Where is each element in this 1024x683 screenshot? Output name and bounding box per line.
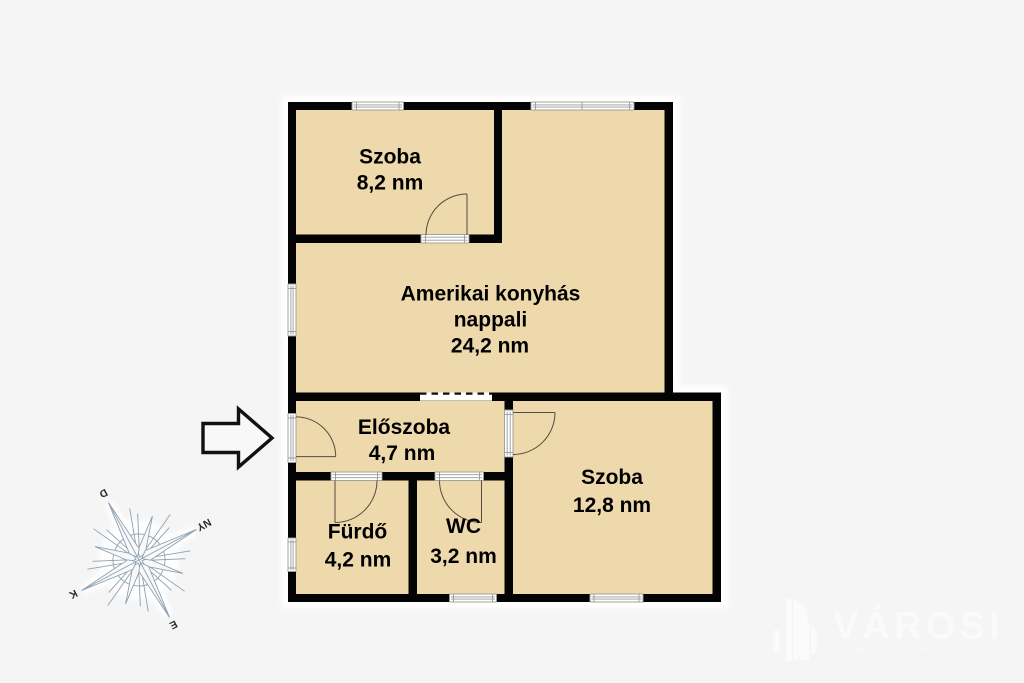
svg-text:8,2 nm: 8,2 nm bbox=[357, 172, 424, 195]
svg-text:VÁROSI: VÁROSI bbox=[833, 604, 1004, 648]
svg-text:Szoba: Szoba bbox=[359, 146, 421, 169]
svg-text:nappali: nappali bbox=[454, 309, 528, 332]
svg-text:4,2 nm: 4,2 nm bbox=[325, 549, 392, 572]
svg-text:INGATLANIRODA: INGATLANIRODA bbox=[834, 644, 994, 656]
svg-text:24,2 nm: 24,2 nm bbox=[451, 335, 529, 358]
svg-text:12,8 nm: 12,8 nm bbox=[573, 494, 651, 517]
svg-text:Amerikai konyhás: Amerikai konyhás bbox=[401, 283, 581, 306]
svg-text:3,2 nm: 3,2 nm bbox=[430, 545, 497, 568]
svg-text:Szoba: Szoba bbox=[581, 466, 643, 489]
svg-text:Előszoba: Előszoba bbox=[358, 416, 451, 439]
svg-text:WC: WC bbox=[446, 515, 481, 538]
svg-text:Fürdő: Fürdő bbox=[328, 521, 387, 544]
svg-text:4,7 nm: 4,7 nm bbox=[369, 442, 436, 465]
